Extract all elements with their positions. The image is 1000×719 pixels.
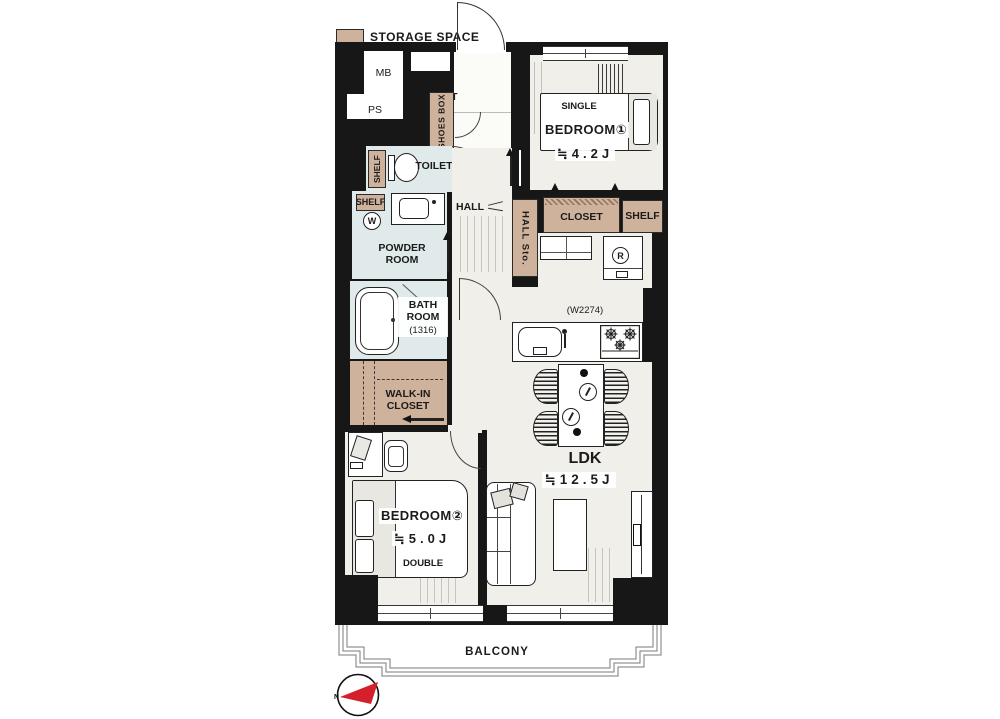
fridge-line — [604, 268, 642, 269]
vanity-sink — [399, 198, 429, 219]
bedroom1-pocket-door — [519, 150, 521, 186]
sink-tray — [533, 347, 547, 355]
single-bed-pillow — [633, 99, 650, 145]
bedroom1-bed-row: SINGLE — [556, 100, 602, 113]
powder-arrow-line — [447, 240, 449, 272]
floor-plan-canvas: STORAGE SPACE MB PS ENT SHOES BOX SHELF … — [0, 0, 1000, 719]
powder-shelf: SHELF — [356, 194, 385, 211]
entrance-door-arc — [457, 2, 505, 50]
fridge-tray — [616, 271, 628, 278]
hall-label: HALL — [450, 200, 490, 214]
fridge-symbol: R — [612, 247, 629, 264]
bedroom2-name: BEDROOM② — [379, 508, 465, 523]
tv-screen — [633, 524, 641, 546]
bedroom2-floor-lines — [420, 577, 456, 603]
closet-hatch — [545, 199, 618, 205]
tv-board-line — [641, 495, 642, 574]
ldk-door-leaf — [459, 278, 460, 320]
bedroom2-name-row: BEDROOM② — [375, 508, 469, 524]
compass-north-label: N — [334, 694, 339, 701]
cup-1 — [580, 369, 588, 377]
faucet-stem — [564, 334, 566, 348]
sofa-cushion-line-2 — [487, 551, 510, 552]
shaft-mb-label: MB — [364, 66, 403, 81]
ldk-floor-lines — [588, 548, 614, 602]
wic-arrow-line — [410, 418, 444, 421]
bathtub-inner — [360, 292, 394, 350]
vanity-faucet — [432, 200, 436, 204]
desk-tray — [350, 462, 363, 469]
faucet-head — [562, 329, 567, 334]
hall-storage: HALL Sto. — [512, 199, 538, 277]
bedroom1-size-row: ≒4.2J — [549, 145, 621, 162]
desk-chair-seat — [388, 446, 404, 467]
double-bed-pillow-1 — [355, 500, 374, 537]
shaft-ps-label: PS — [347, 103, 403, 118]
coffee-table — [553, 499, 587, 571]
double-bed-pillow-2 — [355, 539, 374, 573]
bedroom1-blinds — [598, 64, 626, 94]
wic-arrow-head — [402, 415, 411, 423]
sofa-cushion-line-1 — [487, 517, 510, 518]
bedroom1-name-row: BEDROOM① — [538, 122, 634, 138]
hall-floor-lines — [460, 216, 504, 272]
kitchen-width-label: (W2274) — [558, 305, 612, 317]
wall-notch — [411, 52, 450, 71]
ldk-name: LDK — [558, 449, 612, 469]
ldk-counter-divider — [566, 237, 567, 259]
toilet-label: TOILET — [414, 159, 454, 173]
compass: N — [334, 671, 382, 719]
bath-room-label: BATH ROOM — [398, 297, 448, 325]
powder-room-label: POWDER ROOM — [372, 241, 432, 267]
toilet-shelf: SHELF — [368, 150, 386, 188]
bedroom1-shelf: SHELF — [622, 200, 663, 233]
closet-door-handle-1 — [551, 183, 559, 191]
kitchen-wall-column — [643, 288, 668, 362]
hall-sto-wall-top — [512, 190, 538, 199]
dining-chair-2 — [533, 411, 558, 446]
cup-2 — [573, 428, 581, 436]
stove — [600, 325, 640, 359]
ldk-size-row: ≒12.5J — [537, 471, 621, 489]
hall-arrow-head — [506, 148, 514, 156]
hall-sto-wall-bottom — [512, 277, 538, 287]
bedroom2-size: ≒5.0J — [392, 531, 452, 546]
balcony-label: BALCONY — [437, 645, 557, 660]
bathtub-drain — [391, 318, 395, 322]
bedroom1-bed-type: SINGLE — [559, 101, 598, 112]
bedroom1-size: ≒4.2J — [555, 146, 615, 161]
bath-room-size: (1316) — [398, 325, 448, 337]
bedroom2-bed-type: DOUBLE — [401, 558, 445, 569]
dining-chair-1 — [533, 369, 558, 404]
ldk-size: ≒12.5J — [542, 472, 615, 488]
washing-machine: W — [363, 212, 381, 230]
shoes-box: SHOES BOX — [429, 92, 454, 150]
bedroom1-window-tick — [585, 49, 586, 58]
bedroom1-name: BEDROOM① — [543, 122, 629, 137]
hall-arrow-line — [510, 156, 512, 186]
bedroom1-closet-label: CLOSET — [543, 210, 620, 225]
wic-hanger-rail — [377, 379, 443, 380]
bedroom2-size-row: ≒5.0J — [383, 530, 461, 547]
bedroom2-bed-row: DOUBLE — [398, 557, 448, 571]
powder-arrow-head — [443, 232, 451, 240]
walk-in-closet-label: WALK-IN CLOSET — [368, 387, 448, 413]
entrance-door-leaf — [457, 2, 458, 50]
closet-door-handle-2 — [611, 183, 619, 191]
